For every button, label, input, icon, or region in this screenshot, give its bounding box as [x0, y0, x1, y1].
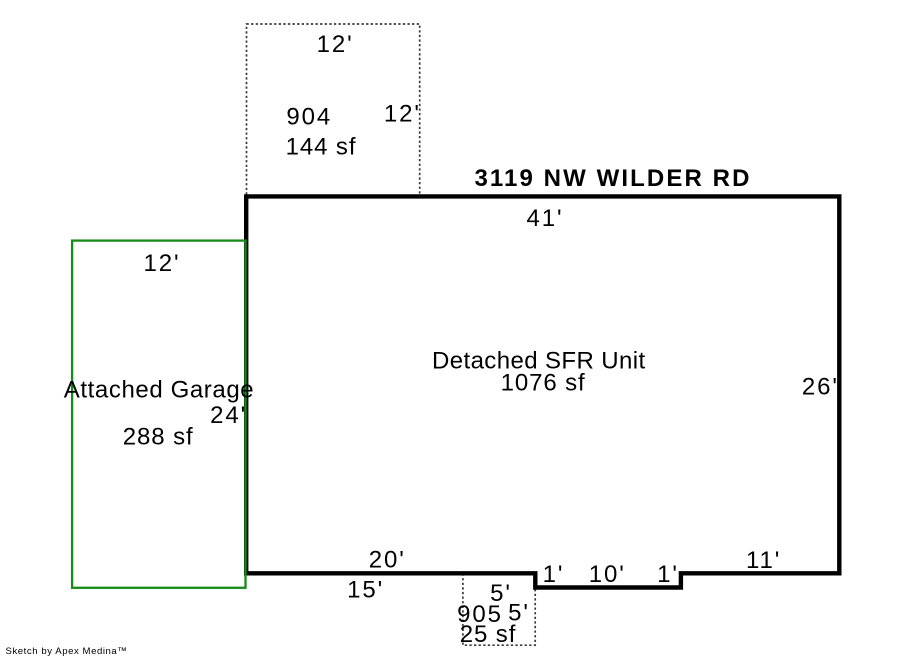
svg-text:11': 11' — [746, 547, 781, 574]
svg-text:1076 sf: 1076 sf — [501, 369, 586, 396]
svg-text:288 sf: 288 sf — [123, 424, 194, 451]
svg-text:Sketch by Apex Medina™: Sketch by Apex Medina™ — [6, 646, 128, 657]
svg-text:12': 12' — [144, 250, 181, 277]
svg-text:1': 1' — [543, 561, 565, 588]
svg-text:904: 904 — [286, 103, 332, 130]
svg-text:12': 12' — [317, 31, 354, 58]
svg-text:24': 24' — [210, 402, 247, 429]
svg-text:Attached Garage: Attached Garage — [64, 377, 254, 404]
svg-text:26': 26' — [802, 374, 839, 401]
svg-text:12': 12' — [384, 101, 421, 128]
svg-text:15': 15' — [347, 576, 384, 603]
svg-text:20': 20' — [369, 546, 406, 573]
svg-text:10': 10' — [589, 561, 626, 588]
svg-text:25 sf: 25 sf — [460, 621, 517, 648]
svg-text:3119 NW WILDER RD: 3119 NW WILDER RD — [474, 165, 751, 192]
svg-text:41': 41' — [527, 205, 564, 232]
svg-text:1': 1' — [657, 561, 679, 588]
svg-text:144 sf: 144 sf — [286, 134, 357, 161]
